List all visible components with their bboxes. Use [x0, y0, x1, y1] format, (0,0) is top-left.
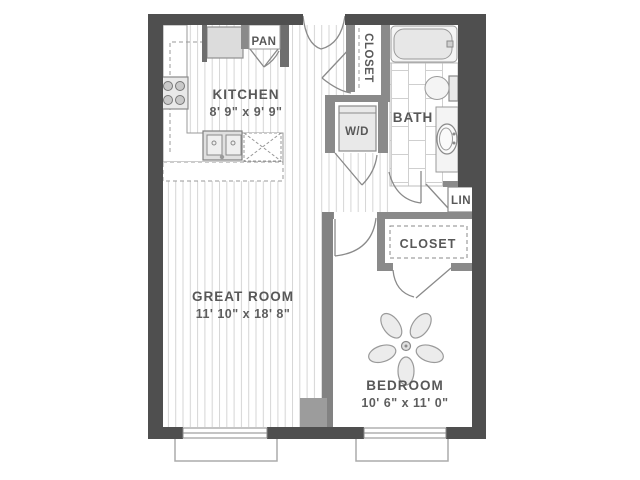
- entry-closet-right-wall: [381, 25, 390, 97]
- kitchen-sink-icon: [203, 131, 242, 160]
- kitchen-dims: 8' 9" x 9' 9": [210, 105, 283, 119]
- fridge-divider-wall: [202, 25, 207, 62]
- bottom-wall-right: [446, 427, 486, 439]
- pantry-label: PAN: [252, 36, 277, 48]
- vanity-sink-icon: [436, 107, 458, 172]
- washer-dryer-icon: W/D: [339, 106, 376, 151]
- toilet-icon: [425, 76, 458, 101]
- washer-dryer-label: W/D: [345, 126, 369, 138]
- floor-plan-page: PAN CLOSET W/D: [0, 0, 640, 480]
- pantry-right-wall: [280, 25, 289, 67]
- bottom-wall-left: [148, 427, 183, 439]
- top-wall-left: [148, 14, 303, 25]
- kitchen-label: KITCHEN: [213, 87, 280, 102]
- floor-plan: PAN CLOSET W/D: [0, 0, 640, 480]
- bedroom-closet-bottom-left: [377, 263, 393, 271]
- linen-label: LIN: [451, 195, 471, 207]
- laundry-left-wall: [325, 95, 335, 153]
- bedroom-closet-label: CLOSET: [400, 237, 457, 251]
- right-wall: [472, 14, 486, 439]
- laundry-right-wall: [378, 102, 388, 153]
- structural-chase: [300, 398, 327, 431]
- range-icon: [160, 77, 188, 109]
- great-room-dims: 11' 10" x 18' 8": [196, 307, 291, 321]
- refrigerator-icon: [207, 27, 243, 58]
- bedroom-top-wall: [377, 212, 472, 219]
- bottom-wall-middle: [267, 427, 364, 439]
- bath-right-wall: [458, 14, 474, 187]
- entry-closet-label: CLOSET: [362, 33, 374, 83]
- dishwasher-icon: [244, 133, 281, 161]
- bedroom-label: BEDROOM: [366, 378, 444, 393]
- bedroom-window: [364, 428, 446, 438]
- bath-label: BATH: [393, 110, 434, 125]
- great-room-label: GREAT ROOM: [192, 289, 294, 304]
- great-room-window: [183, 428, 267, 438]
- bedroom-closet-bottom-right: [451, 263, 472, 271]
- bathtub-icon: [391, 26, 457, 62]
- left-wall: [148, 14, 163, 439]
- counter-overhang: [163, 162, 283, 181]
- pantry-left-wall: [241, 25, 249, 49]
- bedroom-dims: 10' 6" x 11' 0": [361, 396, 448, 410]
- entry-closet-left-wall: [346, 25, 355, 92]
